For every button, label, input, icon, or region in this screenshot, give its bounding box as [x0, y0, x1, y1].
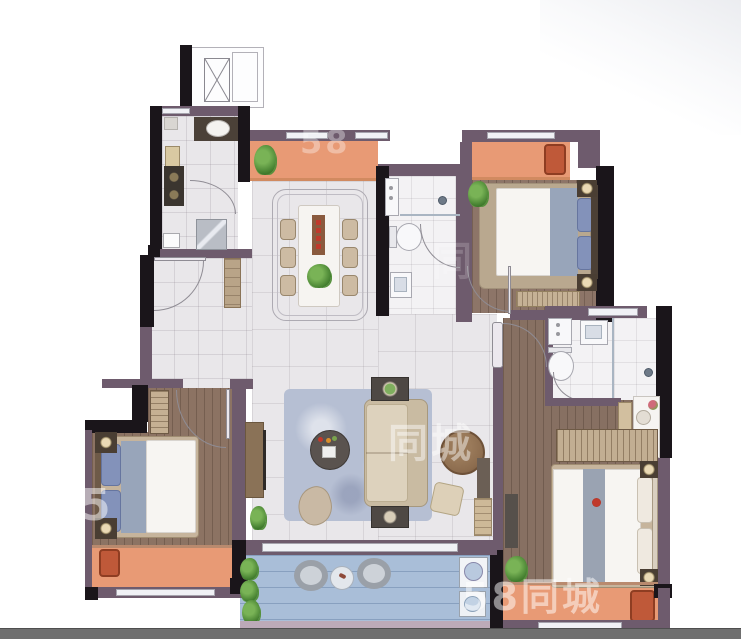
north-balcony-sill: [472, 177, 570, 180]
laundry-basin-bowl: [464, 596, 481, 612]
master-shower-head: [644, 368, 653, 377]
master-bed-runner: [583, 469, 605, 583]
master-nightstand-lamp-1: [640, 461, 658, 478]
dining-balcony-plant: [254, 145, 276, 175]
wall-master-balcony-post-left: [490, 550, 503, 630]
master-bed-pillow-2: [637, 528, 653, 574]
terrace-plant-2: [240, 580, 258, 602]
dining-chair-5: [342, 247, 358, 268]
master-shower-glass: [612, 318, 614, 400]
shared-bath-faucet-dots: [389, 186, 393, 190]
wall-west-balcony-post-left: [85, 587, 98, 600]
wall-master-bath-bottom: [545, 398, 621, 406]
dining-candles: [316, 220, 321, 225]
shared-bath-glass-partition: [400, 214, 462, 216]
north-bedroom-plant: [468, 181, 488, 207]
west-nightstand-lamp-2: [95, 518, 117, 539]
north-dresser: [516, 291, 580, 307]
wall-west-bedroom-right: [232, 388, 246, 550]
wall-lobby-left: [180, 45, 192, 109]
dressing-stool: [636, 410, 651, 425]
master-bed-flower-deco: [592, 498, 601, 507]
north-bed-headboard: [591, 185, 598, 279]
wall-notch-vertical: [132, 385, 148, 422]
dining-window-1: [286, 132, 328, 139]
shared-bath-shower-head: [438, 196, 447, 205]
sofa-cushion-split: [366, 452, 408, 454]
footer-bar: [0, 628, 741, 639]
master-bath-basin-inner: [585, 325, 602, 339]
background-sheen: [540, 0, 741, 135]
elevator-x-icon: [205, 59, 229, 101]
kitchen-window: [162, 108, 190, 114]
elevator-box: [204, 58, 230, 102]
stair-shaft: [232, 52, 258, 102]
north-bedroom-window: [487, 132, 555, 139]
wall-west-bedroom-left: [85, 430, 92, 598]
living-plant: [250, 506, 266, 530]
terrace-armchair-1: [294, 560, 328, 591]
dressing-flowers-1: [648, 400, 658, 410]
living-south-window: [262, 543, 458, 552]
wall-master-east: [658, 458, 670, 588]
exterior-light-well: [85, 385, 133, 421]
wall-north-bedroom-right: [596, 166, 614, 322]
shared-bath-toilet-bowl: [396, 223, 422, 251]
west-bed-blanket: [121, 441, 146, 533]
tv-console: [245, 422, 264, 498]
washing-machine-drum: [464, 562, 483, 581]
west-bed-mattress: [146, 440, 196, 533]
west-balcony-armchair: [99, 549, 120, 577]
wall-master-balcony-right: [658, 588, 670, 630]
west-balcony-sill: [92, 545, 234, 548]
north-bedroom-door-leaf: [508, 266, 511, 314]
master-tv-console: [505, 494, 518, 548]
tv-panel: [263, 430, 266, 490]
sofa-side-table-bottom: [371, 506, 409, 528]
gas-stove: [164, 166, 184, 206]
terrace-bottom-trim: [240, 621, 490, 628]
dining-chair-6: [342, 275, 358, 296]
master-door-leaf: [492, 322, 503, 368]
shared-bath-basin-inner: [394, 277, 407, 292]
kitchen-sink: [206, 120, 230, 137]
kitchen-cabinet-white: [163, 233, 180, 248]
shared-bath-vanity: [385, 178, 399, 216]
master-bath-window: [588, 308, 638, 316]
wall-north-bedroom-right-top: [578, 130, 600, 168]
north-nightstand-lamp-1: [577, 180, 597, 197]
master-balcony-sill: [503, 582, 658, 585]
north-balcony-armchair: [544, 144, 566, 175]
master-bath-faucet-dots: [556, 323, 560, 327]
north-bed-mattress: [496, 188, 556, 276]
living-aircon: [477, 458, 490, 498]
west-balcony-window: [116, 589, 215, 596]
coffee-table-tray: [322, 446, 336, 458]
coffee-table-deco: [318, 437, 323, 442]
north-bed-blanket: [550, 188, 578, 276]
master-bath-vanity: [548, 318, 572, 345]
dining-chair-2: [280, 247, 296, 268]
terrace-armchair-2: [357, 558, 391, 589]
wall-dining-post-left: [240, 128, 250, 182]
dining-chair-3: [280, 275, 296, 296]
west-wardrobe: [150, 390, 169, 434]
refrigerator: [196, 219, 227, 250]
west-nightstand-lamp-1: [95, 432, 117, 453]
sofa-side-table-top: [371, 377, 409, 401]
wall-entry-left-lower: [140, 327, 152, 385]
master-bed-pillow-1: [637, 477, 653, 523]
wall-shared-bath-top: [378, 164, 462, 176]
dining-table-plant: [307, 264, 331, 288]
terrace-plant-1: [240, 558, 258, 580]
kitchen-counter-small: [164, 117, 178, 130]
wall-master-west: [493, 366, 503, 552]
dining-chair-4: [342, 219, 358, 240]
cutting-board: [165, 146, 180, 167]
wall-north-bedroom-left: [460, 142, 472, 322]
master-wardrobe: [556, 429, 658, 462]
dining-balcony-sill: [250, 178, 378, 181]
ottoman: [429, 481, 465, 517]
dining-chair-1: [280, 219, 296, 240]
living-side-cabinet: [474, 498, 492, 536]
dressing-cabinet: [618, 402, 632, 432]
master-balcony-armchair: [630, 590, 655, 622]
dining-window-2: [355, 132, 388, 139]
floor-plan-canvas: 同 58 5 同城 58同城: [0, 0, 741, 639]
north-nightstand-lamp-2: [577, 274, 597, 291]
master-bedroom-plant: [505, 556, 527, 582]
wall-entry-left-upper: [140, 255, 154, 327]
west-bedroom-door-leaf: [226, 389, 230, 439]
entry-shoe-cabinet: [224, 258, 241, 308]
wall-kitchen-left: [150, 106, 162, 256]
